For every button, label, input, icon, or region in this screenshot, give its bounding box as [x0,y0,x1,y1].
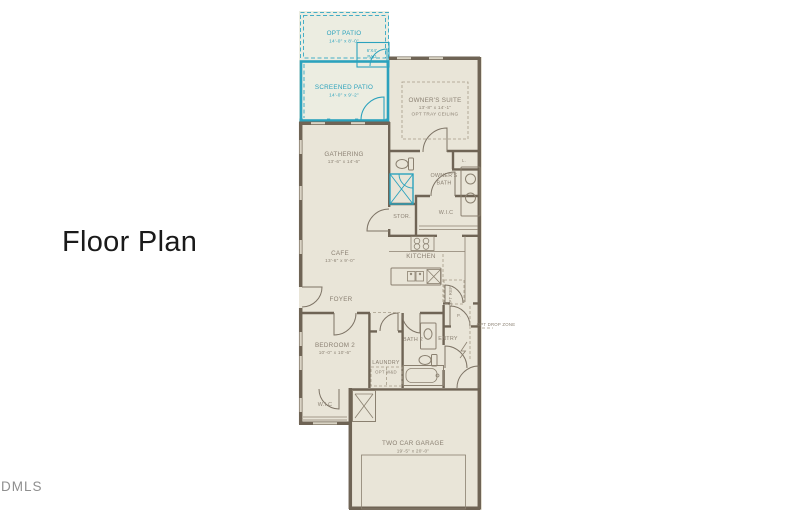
label-pad-2: PAD [367,54,376,59]
label-foyer: FOYER [330,296,353,303]
dims-bedroom2: 10'-0" x 10'-6" [319,350,352,355]
label-opt-patio: OPT PATIO [327,30,362,37]
label-garage: TWO CAR GARAGE [382,440,444,447]
label-laundry: LAUNDRY [372,360,400,366]
label-wic2: W.I.C [318,402,332,408]
floor-plan-svg: OPT PATIO 14'-0" x 8'-0" 6'X4' PAD SCREE… [0,0,800,516]
dims-cafe: 13'-6" x 9'-0" [325,258,355,263]
label-cafe: CAFE [331,250,349,257]
label-pad-1: 6'X4' [367,48,378,53]
label-gathering: GATHERING [324,151,363,158]
dims-garage: 19'-5" x 20'-0" [397,449,430,454]
label-owners-suite: OWNER'S SUITE [408,97,461,104]
label-pantry: P. [457,313,461,318]
dims-gathering: 13'-6" x 14'-6" [328,159,361,164]
note-owners-suite: OPT TRAY CEILING [412,112,459,117]
label-screened-patio: SCREENED PATIO [315,84,373,91]
label-kitchen: KITCHEN [406,253,436,260]
label-opt-ref: OPT REF [448,286,453,306]
note-laundry: OPT W&D [375,370,397,375]
label-entry: ENTRY [438,336,458,342]
label-wic: W.I.C [439,210,453,216]
label-stor: STOR. [393,214,411,220]
page: Floor Plan DMLS [0,0,800,516]
dims-owners-suite: 13'-8" x 14'-1" [419,105,452,110]
dims-opt-patio: 14'-0" x 8'-0" [329,39,359,44]
label-linen: L. [462,158,466,163]
label-owners-bath-1: OWNER'S [430,173,457,179]
label-bath2: BATH 2 [403,337,423,343]
label-drop-zone: OPT DROP ZONE [477,322,516,327]
label-owners-bath-2: BATH [437,181,452,187]
label-bedroom2: BEDROOM 2 [315,342,355,349]
dims-screened-patio: 14'-0" x 9'-2" [329,93,359,98]
